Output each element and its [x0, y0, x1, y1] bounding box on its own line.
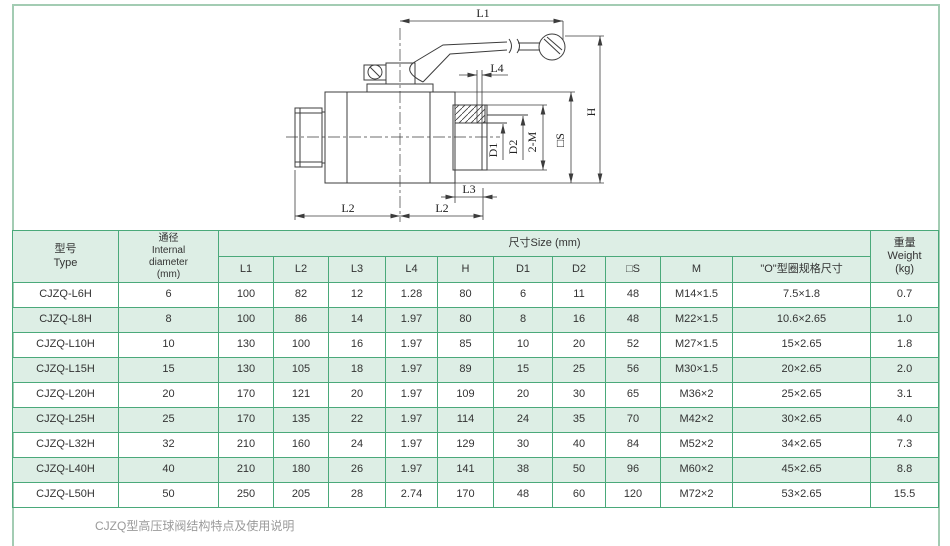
- table-cell: 121: [274, 383, 329, 408]
- table-cell: 0.7: [871, 283, 939, 308]
- header-diameter: 通径 Internal diameter (mm): [119, 231, 219, 283]
- table-cell: 7.3: [871, 433, 939, 458]
- table-cell: 15: [494, 358, 553, 383]
- dimension-lines: [295, 21, 604, 220]
- dim-label-d1: D1: [486, 143, 500, 158]
- table-cell: CJZQ-L20H: [13, 383, 119, 408]
- table-cell: 56: [606, 358, 661, 383]
- table-cell: 84: [606, 433, 661, 458]
- table-row: CJZQ-L6H610082121.288061148M14×1.57.5×1.…: [13, 283, 939, 308]
- table-cell: 50: [553, 458, 606, 483]
- table-row: CJZQ-L8H810086141.978081648M22×1.510.6×2…: [13, 308, 939, 333]
- table-cell: 60: [553, 483, 606, 508]
- table-cell: M36×2: [661, 383, 733, 408]
- dim-label-square-s: □S: [553, 133, 567, 147]
- table-row: CJZQ-L25H25170135221.97114243570M42×230×…: [13, 408, 939, 433]
- table-cell: 130: [219, 333, 274, 358]
- table-cell: 24: [494, 408, 553, 433]
- table-cell: 250: [219, 483, 274, 508]
- table-cell: 1.97: [386, 383, 438, 408]
- table-cell: 20: [329, 383, 386, 408]
- table-cell: M14×1.5: [661, 283, 733, 308]
- table-cell: 65: [606, 383, 661, 408]
- table-cell: 30×2.65: [733, 408, 871, 433]
- table-cell: 24: [329, 433, 386, 458]
- table-cell: 14: [329, 308, 386, 333]
- dim-label-l3: L3: [462, 182, 475, 196]
- table-cell: 8: [119, 308, 219, 333]
- table-cell: 105: [274, 358, 329, 383]
- table-cell: CJZQ-L8H: [13, 308, 119, 333]
- table-row: CJZQ-L15H15130105181.9789152556M30×1.520…: [13, 358, 939, 383]
- table-cell: 1.97: [386, 458, 438, 483]
- table-cell: 130: [219, 358, 274, 383]
- table-row: CJZQ-L20H20170121201.97109203065M36×225×…: [13, 383, 939, 408]
- table-cell: CJZQ-L15H: [13, 358, 119, 383]
- table-cell: 160: [274, 433, 329, 458]
- header-weight: 重量 Weight (kg): [871, 231, 939, 283]
- table-cell: 50: [119, 483, 219, 508]
- header-square-s: □S: [606, 257, 661, 283]
- table-cell: 89: [438, 358, 494, 383]
- table-row: CJZQ-L32H32210160241.97129304084M52×234×…: [13, 433, 939, 458]
- table-cell: 170: [219, 383, 274, 408]
- table-row: CJZQ-L40H40210180261.97141385096M60×245×…: [13, 458, 939, 483]
- header-d2: D2: [553, 257, 606, 283]
- header-h: H: [438, 257, 494, 283]
- table-row: CJZQ-L10H10130100161.9785102052M27×1.515…: [13, 333, 939, 358]
- table-cell: CJZQ-L10H: [13, 333, 119, 358]
- table-cell: 8: [494, 308, 553, 333]
- table-cell: 10: [119, 333, 219, 358]
- table-cell: 45×2.65: [733, 458, 871, 483]
- table-cell: M60×2: [661, 458, 733, 483]
- table-cell: 170: [438, 483, 494, 508]
- table-cell: M27×1.5: [661, 333, 733, 358]
- table-cell: 170: [219, 408, 274, 433]
- table-cell: 80: [438, 308, 494, 333]
- table-cell: 30: [553, 383, 606, 408]
- table-cell: 52: [606, 333, 661, 358]
- table-cell: 7.5×1.8: [733, 283, 871, 308]
- table-cell: 48: [606, 283, 661, 308]
- table-cell: 11: [553, 283, 606, 308]
- table-cell: 120: [606, 483, 661, 508]
- table-cell: 12: [329, 283, 386, 308]
- dim-label-l2-right: L2: [435, 201, 448, 215]
- dim-label-h: H: [584, 107, 598, 116]
- table-cell: 35: [553, 408, 606, 433]
- header-oring: "O"型圈规格尺寸: [733, 257, 871, 283]
- table-cell: CJZQ-L40H: [13, 458, 119, 483]
- table-cell: M72×2: [661, 483, 733, 508]
- table-cell: 1.97: [386, 333, 438, 358]
- table-cell: 1.8: [871, 333, 939, 358]
- table-cell: 6: [494, 283, 553, 308]
- table-cell: 20×2.65: [733, 358, 871, 383]
- spec-table-container: 型号 Type 通径 Internal diameter (mm) 尺寸Size…: [12, 230, 938, 508]
- table-cell: M42×2: [661, 408, 733, 433]
- dim-label-2m: 2-M: [525, 131, 539, 152]
- table-cell: 96: [606, 458, 661, 483]
- table-cell: 205: [274, 483, 329, 508]
- table-cell: 40: [553, 433, 606, 458]
- table-cell: CJZQ-L25H: [13, 408, 119, 433]
- table-cell: 25: [553, 358, 606, 383]
- table-cell: M52×2: [661, 433, 733, 458]
- table-cell: 22: [329, 408, 386, 433]
- table-cell: 100: [219, 308, 274, 333]
- table-cell: 15: [119, 358, 219, 383]
- footer-note: CJZQ型高压球阀结构特点及使用说明: [95, 517, 294, 534]
- dim-label-l4: L4: [490, 61, 503, 75]
- header-l4: L4: [386, 257, 438, 283]
- table-cell: 4.0: [871, 408, 939, 433]
- header-size-group: 尺寸Size (mm): [219, 231, 871, 257]
- table-cell: 1.97: [386, 408, 438, 433]
- table-cell: 80: [438, 283, 494, 308]
- table-cell: 32: [119, 433, 219, 458]
- table-cell: 129: [438, 433, 494, 458]
- header-l1: L1: [219, 257, 274, 283]
- table-cell: 16: [329, 333, 386, 358]
- table-cell: 141: [438, 458, 494, 483]
- table-cell: 15×2.65: [733, 333, 871, 358]
- table-cell: 1.97: [386, 358, 438, 383]
- table-cell: CJZQ-L50H: [13, 483, 119, 508]
- table-cell: 1.97: [386, 433, 438, 458]
- table-cell: 10.6×2.65: [733, 308, 871, 333]
- header-d1: D1: [494, 257, 553, 283]
- table-cell: CJZQ-L32H: [13, 433, 119, 458]
- header-type: 型号 Type: [13, 231, 119, 283]
- spec-table: 型号 Type 通径 Internal diameter (mm) 尺寸Size…: [12, 230, 939, 508]
- table-cell: 180: [274, 458, 329, 483]
- table-cell: 85: [438, 333, 494, 358]
- table-cell: 25×2.65: [733, 383, 871, 408]
- dim-label-d2: D2: [506, 140, 520, 155]
- table-cell: 26: [329, 458, 386, 483]
- valve-technical-drawing: L1 L4 H □S 2-M D2 D1 L3 L2 L2: [0, 0, 950, 228]
- table-cell: 2.74: [386, 483, 438, 508]
- header-m: M: [661, 257, 733, 283]
- table-cell: 109: [438, 383, 494, 408]
- table-cell: 30: [494, 433, 553, 458]
- table-cell: 48: [494, 483, 553, 508]
- table-cell: 1.97: [386, 308, 438, 333]
- table-cell: 100: [274, 333, 329, 358]
- table-cell: 20: [494, 383, 553, 408]
- table-cell: CJZQ-L6H: [13, 283, 119, 308]
- dim-label-l1: L1: [476, 6, 489, 20]
- table-cell: 10: [494, 333, 553, 358]
- table-row: CJZQ-L50H50250205282.741704860120M72×253…: [13, 483, 939, 508]
- table-cell: 100: [219, 283, 274, 308]
- table-cell: 20: [119, 383, 219, 408]
- table-cell: 2.0: [871, 358, 939, 383]
- table-cell: 210: [219, 458, 274, 483]
- table-cell: 40: [119, 458, 219, 483]
- table-cell: 82: [274, 283, 329, 308]
- table-cell: M22×1.5: [661, 308, 733, 333]
- table-cell: 34×2.65: [733, 433, 871, 458]
- table-cell: M30×1.5: [661, 358, 733, 383]
- header-l2: L2: [274, 257, 329, 283]
- table-cell: 48: [606, 308, 661, 333]
- table-cell: 15.5: [871, 483, 939, 508]
- table-cell: 210: [219, 433, 274, 458]
- table-cell: 86: [274, 308, 329, 333]
- dim-label-l2-left: L2: [341, 201, 354, 215]
- table-cell: 3.1: [871, 383, 939, 408]
- table-cell: 1.0: [871, 308, 939, 333]
- table-cell: 25: [119, 408, 219, 433]
- table-cell: 16: [553, 308, 606, 333]
- table-cell: 28: [329, 483, 386, 508]
- header-l3: L3: [329, 257, 386, 283]
- table-cell: 8.8: [871, 458, 939, 483]
- table-cell: 20: [553, 333, 606, 358]
- table-cell: 114: [438, 408, 494, 433]
- table-cell: 1.28: [386, 283, 438, 308]
- table-cell: 38: [494, 458, 553, 483]
- table-cell: 53×2.65: [733, 483, 871, 508]
- table-cell: 6: [119, 283, 219, 308]
- table-cell: 135: [274, 408, 329, 433]
- table-cell: 70: [606, 408, 661, 433]
- table-cell: 18: [329, 358, 386, 383]
